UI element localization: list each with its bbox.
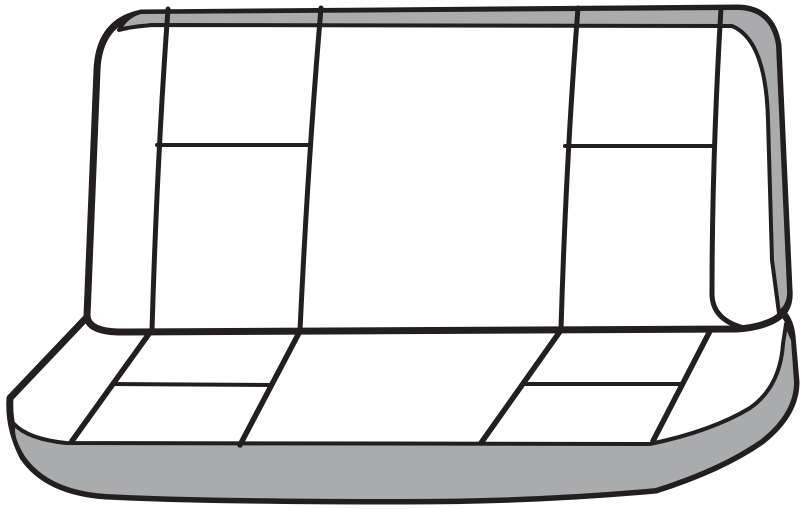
seat-back-outline <box>87 8 789 332</box>
seat-back <box>87 8 789 332</box>
seat-cushion <box>10 309 796 501</box>
bench-seat-drawing <box>0 0 800 509</box>
seat-cushion-seam-horizontal-left <box>113 384 271 385</box>
bench-seat-illustration <box>0 0 800 509</box>
